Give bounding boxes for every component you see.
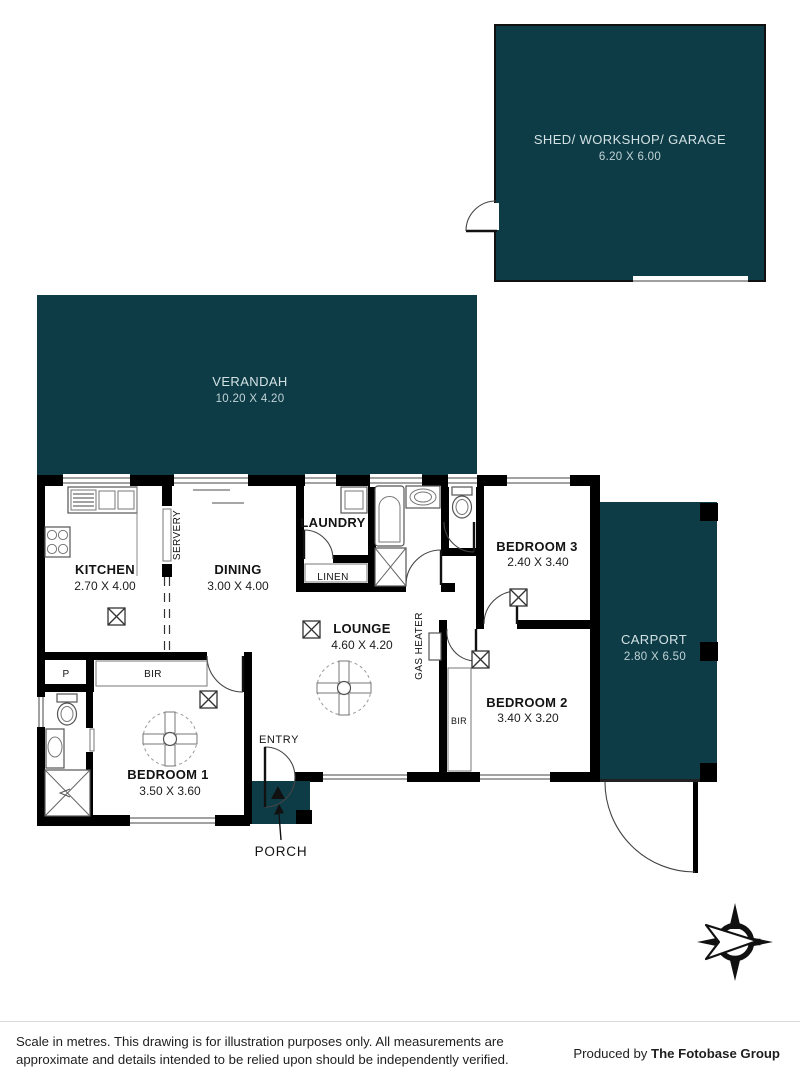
bedroom1-dims: 3.50 X 3.60 [139,784,201,798]
producer-name: The Fotobase Group [651,1046,780,1061]
kitchen-dims: 2.70 X 4.00 [74,579,136,593]
kitchen-drainer [71,490,96,510]
window-ensuite [36,697,46,727]
ensuite-slider-door [90,729,94,751]
bedroom3-label: BEDROOM 3 [496,539,577,554]
servery-label: SERVERY [172,510,183,560]
disclaimer-line2: approximate and details intended to be r… [16,1052,509,1067]
vent-lounge [303,621,320,638]
floorplan-page: SHED/ WORKSHOP/ GARAGE 6.20 X 6.00 VERAN… [0,0,800,1084]
carport-post-middle [700,642,718,661]
carport-post-bottom [700,763,717,782]
dining-label: DINING [214,562,261,577]
window-bedroom2 [480,771,550,783]
floorplan-drawing: SHED/ WORKSHOP/ GARAGE 6.20 X 6.00 VERAN… [0,0,800,1084]
bedroom2-bir-label: BIR [451,716,467,726]
ensuite-fixtures [45,694,90,816]
carport-label: CARPORT [621,632,687,647]
porch-area: ENTRY PORCH [252,734,312,859]
vent-bedroom2 [472,651,489,668]
bathroom-door [406,550,441,585]
kitchen-dining-dashed-divider [165,577,170,652]
shed-dims: 6.20 X 6.00 [599,151,661,163]
bedroom2-label: BEDROOM 2 [486,695,567,710]
vent-bedroom1 [200,691,217,708]
ensuite-toilet [57,694,77,725]
lounge-dims: 4.60 X 4.20 [331,638,393,652]
window-bathroom [370,474,422,487]
porch-label: PORCH [255,844,308,859]
bedroom1-door [207,656,243,692]
shed-area: SHED/ WORKSHOP/ GARAGE 6.20 X 6.00 [466,25,765,283]
bedroom3-dims: 2.40 X 3.40 [507,555,569,569]
shed-roller-door [633,276,748,283]
entry-label: ENTRY [259,734,299,746]
laundry-fixtures [341,487,367,513]
bedroom1-bir-label: BIR [144,669,162,680]
dining-dims: 3.00 X 4.00 [207,579,269,593]
carport-dims: 2.80 X 6.50 [624,651,686,663]
lounge-label: LOUNGE [333,621,390,636]
pantry-label: P [62,669,69,680]
kitchen-sink-bowl-1 [99,491,115,509]
bedroom1-label: BEDROOM 1 [127,767,208,782]
dining-fixtures [193,490,244,503]
kitchen-sink-bowl-2 [118,491,134,509]
vent-bedroom3 [510,589,527,606]
laundry-label: LAUNDRY [300,515,365,530]
carport-area: CARPORT 2.80 X 6.50 [598,502,718,873]
verandah-label: VERANDAH [212,374,287,389]
shed-door-arc [466,201,496,231]
produced-by-text: Produced by [573,1046,651,1061]
disclaimer-line1: Scale in metres. This drawing is for ill… [16,1034,504,1049]
window-kitchen [63,474,130,487]
bathroom-fixtures [375,486,440,586]
kitchen-label: KITCHEN [75,562,135,577]
ceiling-fan-lounge [317,661,371,715]
window-dining [174,474,248,487]
footer: Scale in metres. This drawing is for ill… [0,1021,800,1067]
shed-door-opening [492,203,499,230]
compass-north-label: N [750,938,762,946]
linen-label: LINEN [317,572,348,583]
carport-gate-arc [605,782,695,872]
window-bedroom1 [130,814,215,827]
ceiling-fan-bedroom1 [143,712,197,766]
window-wc [448,474,477,487]
window-laundry [305,474,336,487]
window-bedroom3 [507,474,570,487]
verandah-area: VERANDAH 10.20 X 4.20 [37,295,477,475]
laundry-door [304,530,333,559]
gas-heater-unit [429,633,441,660]
shed-label: SHED/ WORKSHOP/ GARAGE [534,132,726,147]
gas-heater-label: GAS HEATER [414,612,425,680]
carport-post-top [700,503,718,521]
compass-icon: N [697,903,773,981]
vent-kitchen [108,608,125,625]
bedroom2-dims: 3.40 X 3.20 [497,711,559,725]
window-lounge [323,771,407,783]
footer-divider [0,1021,800,1022]
carport-gate-leaf [693,782,698,873]
wc-toilet [452,487,472,518]
verandah-dims: 10.20 X 4.20 [216,393,285,405]
producer-credit: Produced by The Fotobase Group [573,1046,780,1061]
